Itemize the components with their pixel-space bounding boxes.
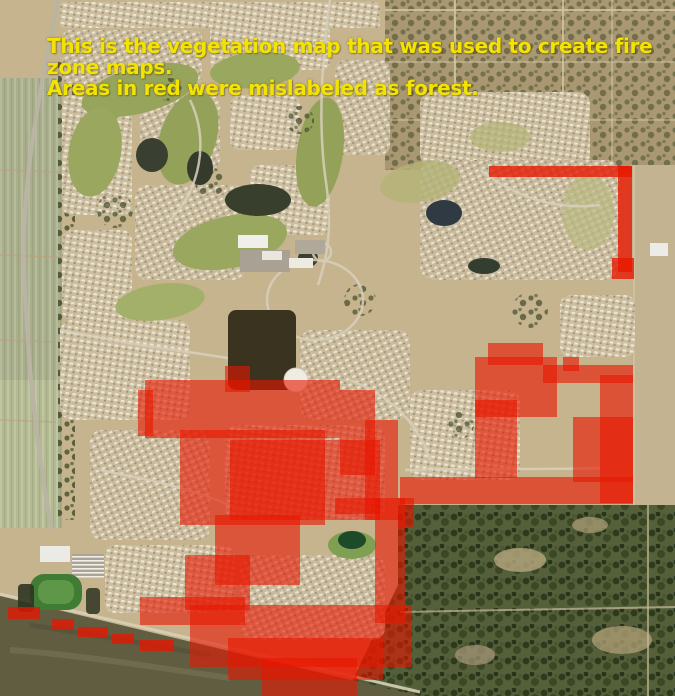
red-region-central-blob: [138, 390, 153, 436]
caption-line-2: Areas in red were mislabeled as forest.: [47, 78, 657, 99]
housing-tract: [60, 2, 380, 28]
red-region-top-right-L-strip: [618, 166, 632, 272]
barn-building: [650, 243, 668, 256]
commercial-building: [238, 235, 268, 248]
red-dash: [140, 640, 174, 651]
red-region-right-horseshoe-blob: [398, 498, 414, 528]
map-caption: This is the vegetation map that was used…: [47, 36, 657, 99]
pond: [225, 184, 291, 216]
red-region-central-blob: [145, 380, 340, 438]
screenshot-stage: This is the vegetation map that was used…: [0, 0, 675, 696]
satellite-map: [0, 0, 675, 696]
red-dash: [78, 627, 108, 637]
red-dash: [112, 634, 134, 644]
pond: [468, 258, 500, 274]
red-region-top-right-L-strip: [612, 258, 634, 279]
red-region-right-horseshoe-blob: [400, 477, 633, 504]
red-region-central-blob: [262, 658, 357, 696]
red-region-right-horseshoe-blob: [475, 400, 517, 478]
commercial-building: [262, 251, 282, 260]
red-dash: [8, 607, 40, 619]
sports-field: [38, 580, 74, 604]
red-region-central-blob: [335, 498, 380, 514]
red-region-right-horseshoe-blob: [563, 357, 579, 371]
caption-line-1: This is the vegetation map that was used…: [47, 36, 657, 78]
red-dash: [52, 619, 74, 629]
parking-lot: [72, 554, 104, 578]
pond: [338, 531, 366, 549]
pond: [136, 138, 168, 172]
commercial-building: [289, 258, 313, 268]
pond: [426, 200, 462, 226]
school-building: [40, 546, 70, 562]
east-edge-fields: [630, 165, 675, 510]
housing-tract: [560, 295, 635, 357]
red-region-top-right-L-strip: [489, 166, 632, 177]
red-region-right-horseshoe-blob: [573, 417, 633, 482]
